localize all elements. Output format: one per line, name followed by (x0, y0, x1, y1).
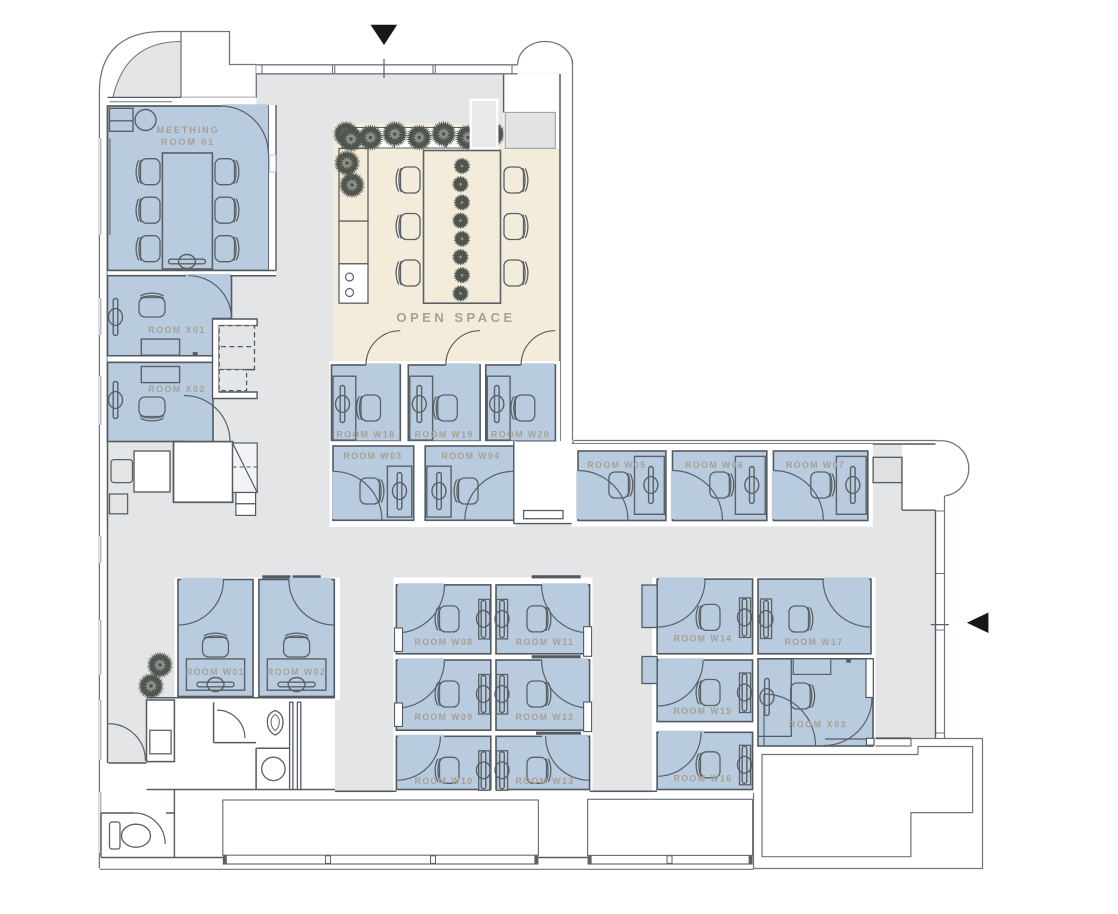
svg-text:ROOM X01: ROOM X01 (148, 325, 205, 335)
svg-text:ROOM W18: ROOM W18 (336, 430, 395, 440)
svg-text:ROOM W13: ROOM W13 (515, 776, 574, 786)
svg-text:ROOM W14: ROOM W14 (673, 634, 732, 644)
svg-text:ROOM 01: ROOM 01 (161, 137, 215, 147)
svg-text:ROOM W03: ROOM W03 (343, 451, 402, 461)
svg-text:ROOM W04: ROOM W04 (441, 451, 500, 461)
svg-text:ROOM W09: ROOM W09 (414, 712, 473, 722)
svg-text:ROOM W11: ROOM W11 (516, 637, 575, 647)
svg-text:ROOM X03: ROOM X03 (789, 720, 847, 730)
svg-text:ROOM X02: ROOM X02 (148, 384, 205, 394)
svg-text:ROOM W06: ROOM W06 (685, 460, 744, 470)
svg-text:ROOM W07: ROOM W07 (786, 460, 845, 470)
svg-text:ROOM W05: ROOM W05 (587, 460, 646, 470)
svg-text:ROOM W10: ROOM W10 (414, 776, 473, 786)
svg-text:MEETHING: MEETHING (157, 125, 220, 135)
svg-text:ROOM W20: ROOM W20 (491, 430, 550, 440)
svg-text:ROOM W17: ROOM W17 (784, 637, 843, 647)
svg-text:OPEN SPACE: OPEN SPACE (396, 310, 515, 325)
svg-text:ROOM W15: ROOM W15 (673, 706, 732, 716)
svg-text:ROOM W12: ROOM W12 (515, 712, 574, 722)
svg-text:ROOM W19: ROOM W19 (415, 430, 474, 440)
svg-text:ROOM W02: ROOM W02 (267, 667, 326, 677)
svg-text:ROOM W01: ROOM W01 (186, 667, 245, 677)
svg-text:ROOM W08: ROOM W08 (414, 637, 473, 647)
svg-text:ROOM W16: ROOM W16 (673, 774, 732, 784)
